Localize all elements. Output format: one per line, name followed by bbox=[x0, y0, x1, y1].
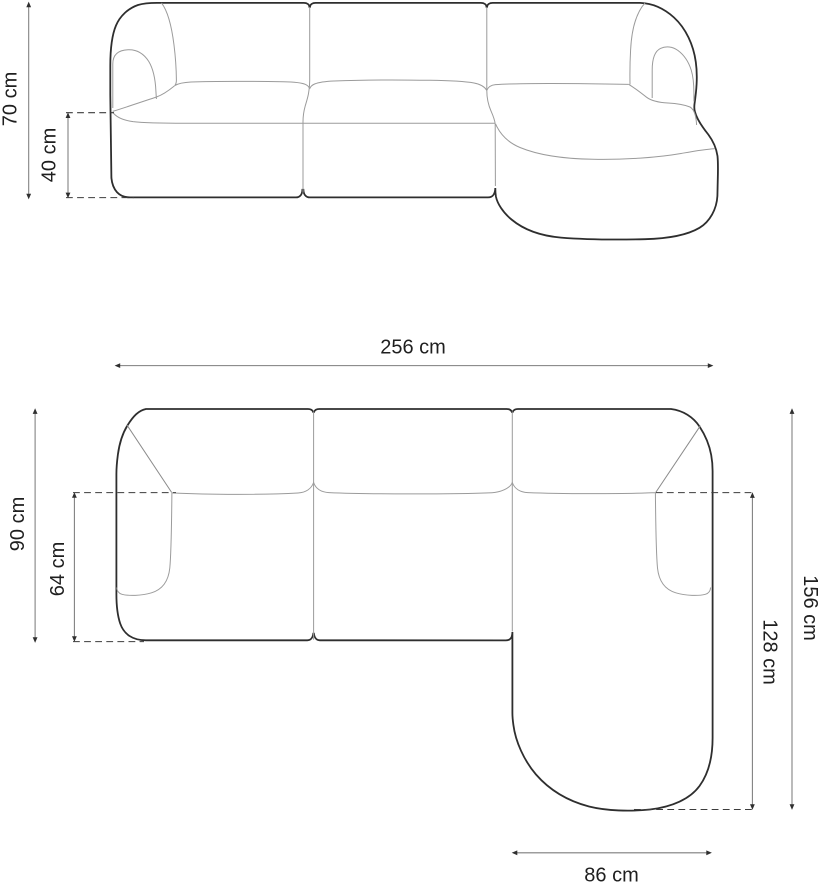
svg-text:70 cm: 70 cm bbox=[0, 72, 22, 126]
svg-text:40 cm: 40 cm bbox=[39, 128, 61, 182]
svg-text:86 cm: 86 cm bbox=[584, 864, 638, 884]
svg-text:90 cm: 90 cm bbox=[7, 497, 29, 551]
svg-text:128 cm: 128 cm bbox=[759, 619, 781, 685]
svg-text:156 cm: 156 cm bbox=[799, 575, 819, 641]
svg-text:64 cm: 64 cm bbox=[47, 542, 69, 596]
svg-text:256 cm: 256 cm bbox=[380, 337, 446, 359]
